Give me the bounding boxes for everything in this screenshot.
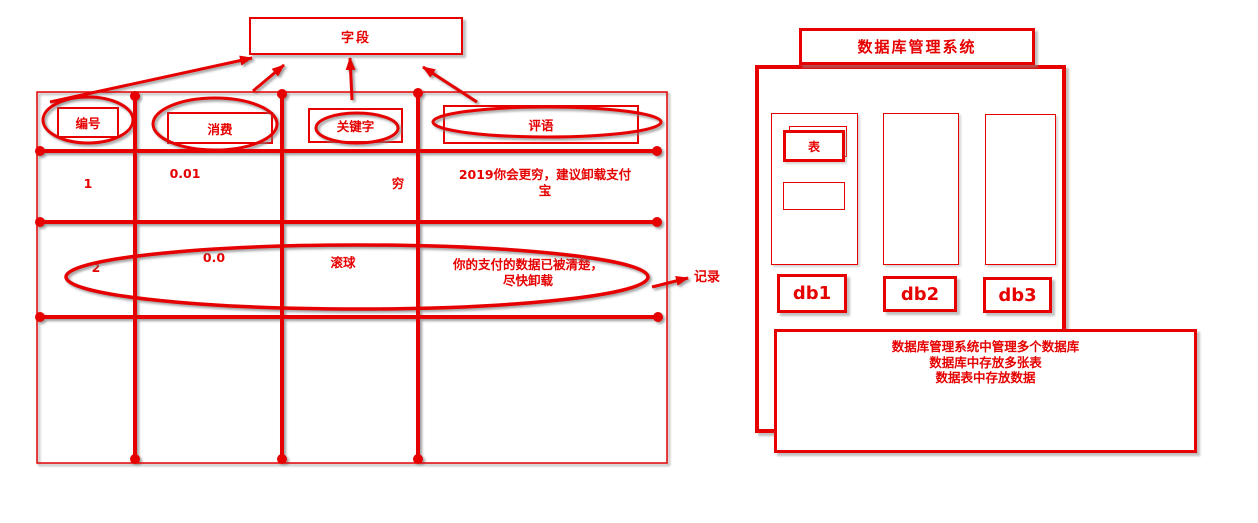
table-box-empty: [783, 182, 845, 210]
field-arrows: [50, 58, 477, 102]
arrow-keyword-to-field: [350, 58, 352, 100]
db3-label: db3: [998, 285, 1036, 306]
cell-row1-cost: 0.01: [165, 166, 205, 182]
dbms-note-box: 数据库管理系统中管理多个数据库 数据库中存放多张表 数据表中存放数据: [774, 329, 1197, 453]
col-header-keyword-label: 关键字: [337, 116, 375, 135]
db3-container: [985, 114, 1056, 265]
cell-row2-keyword: 滚球: [318, 255, 368, 271]
arrow-to-record-label: [652, 278, 688, 287]
cell-row2-cost: 0.0: [194, 250, 234, 266]
db2-label: db2: [901, 284, 939, 305]
dbms-title-label: 数据库管理系统: [857, 36, 976, 57]
table-box: 表: [783, 130, 845, 162]
arrow-cost-to-field: [253, 65, 284, 91]
db2-label-box: db2: [883, 276, 957, 312]
col-header-keyword-box: 关键字: [308, 108, 403, 143]
field-callout-label: 字段: [341, 27, 371, 46]
dbms-note-line-3: 数据表中存放数据: [777, 370, 1194, 386]
col-header-cost-label: 消费: [207, 119, 232, 138]
cell-row1-id: 1: [73, 176, 103, 192]
col-header-id-label: 编号: [75, 113, 100, 132]
cell-row1-comment: 2019你会更穷，建议卸载支付宝: [457, 167, 633, 198]
arrow-id-to-field: [50, 58, 252, 102]
arrow-comment-to-field: [423, 67, 477, 102]
cell-row2-id: 2: [81, 260, 111, 276]
db1-label-box: db1: [777, 274, 847, 313]
db1-label: db1: [793, 283, 831, 304]
record-label: 记录: [694, 266, 720, 285]
diagram-canvas: 字段 编号 消费 关键字 评语 1 0.01 穷 2019你会更穷，建议卸载支付…: [0, 0, 1258, 523]
db2-container: [883, 113, 959, 265]
table-column-lines: [135, 93, 418, 459]
dbms-note-line-2: 数据库中存放多张表: [777, 355, 1194, 371]
col-header-cost-box: 消费: [167, 112, 273, 144]
cell-row2-comment: 你的支付的数据已被清楚，尽快卸载: [449, 257, 607, 288]
cell-row1-keyword: 穷: [383, 176, 413, 192]
col-header-id-box: 编号: [57, 107, 119, 138]
db3-label-box: db3: [983, 277, 1052, 313]
table-box-label: 表: [808, 138, 820, 155]
field-callout-box: 字段: [249, 17, 463, 55]
dbms-note-line-1: 数据库管理系统中管理多个数据库: [777, 339, 1194, 355]
col-header-comment-box: 评语: [443, 105, 639, 144]
col-header-comment-label: 评语: [528, 115, 553, 134]
dbms-title-box: 数据库管理系统: [799, 28, 1035, 65]
